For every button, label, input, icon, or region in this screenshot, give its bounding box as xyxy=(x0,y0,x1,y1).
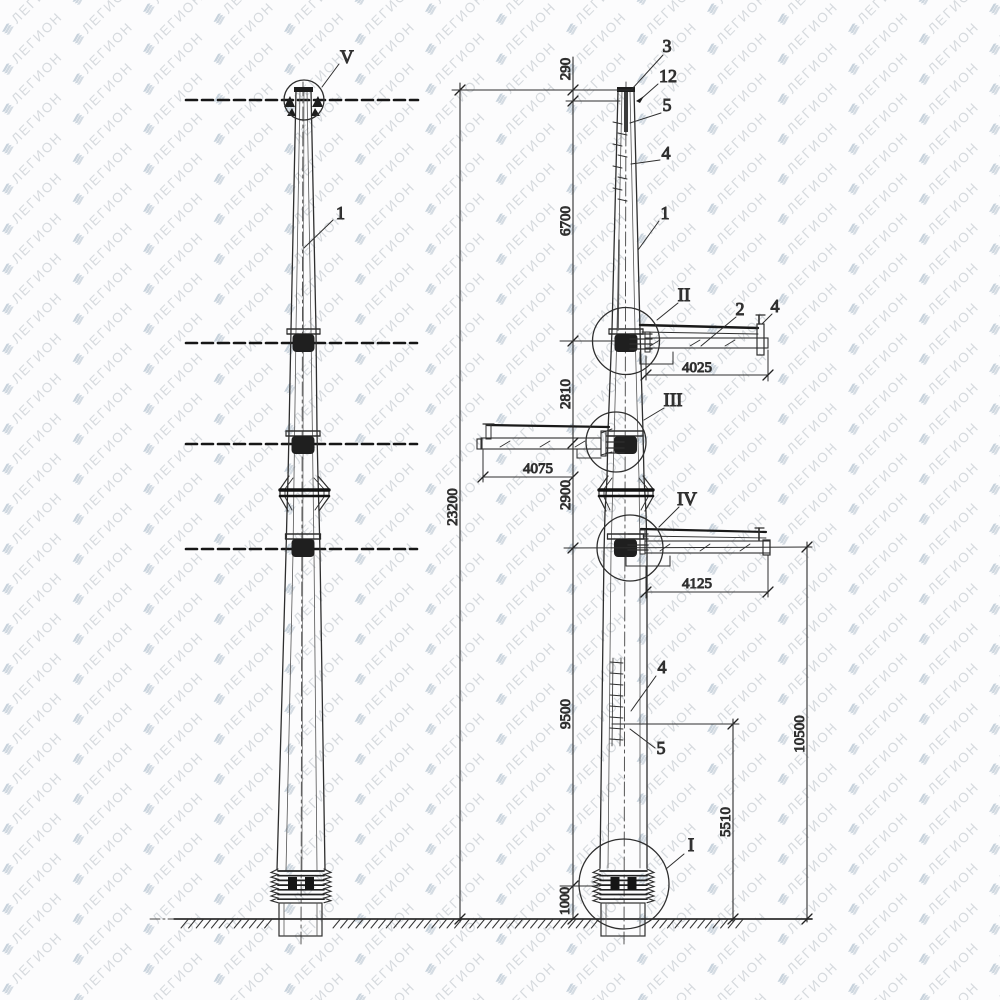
svg-text:4075: 4075 xyxy=(523,461,553,477)
svg-text:2: 2 xyxy=(736,299,745,319)
svg-text:4: 4 xyxy=(662,143,671,163)
svg-text:I: I xyxy=(688,835,694,856)
svg-text:1: 1 xyxy=(661,203,670,223)
svg-text:2900: 2900 xyxy=(558,480,574,510)
svg-text:V: V xyxy=(340,47,354,68)
svg-text:12: 12 xyxy=(659,66,677,86)
svg-text:2810: 2810 xyxy=(558,379,574,409)
svg-text:290: 290 xyxy=(558,58,574,81)
svg-text:23200: 23200 xyxy=(445,488,461,526)
svg-text:4025: 4025 xyxy=(682,360,712,376)
svg-text:10500: 10500 xyxy=(792,715,808,753)
svg-text:III: III xyxy=(664,390,683,411)
svg-text:II: II xyxy=(678,285,691,306)
svg-text:9500: 9500 xyxy=(558,699,574,729)
svg-text:1: 1 xyxy=(336,203,345,223)
svg-text:4: 4 xyxy=(658,657,667,677)
svg-text:4125: 4125 xyxy=(682,576,712,592)
svg-text:5: 5 xyxy=(657,738,666,758)
svg-text:6700: 6700 xyxy=(558,206,574,236)
svg-text:4: 4 xyxy=(771,296,780,316)
svg-text:5: 5 xyxy=(663,95,672,115)
svg-text:3: 3 xyxy=(663,36,672,56)
svg-text:1000: 1000 xyxy=(558,887,573,915)
svg-text:IV: IV xyxy=(677,489,697,510)
svg-text:5510: 5510 xyxy=(718,807,734,837)
